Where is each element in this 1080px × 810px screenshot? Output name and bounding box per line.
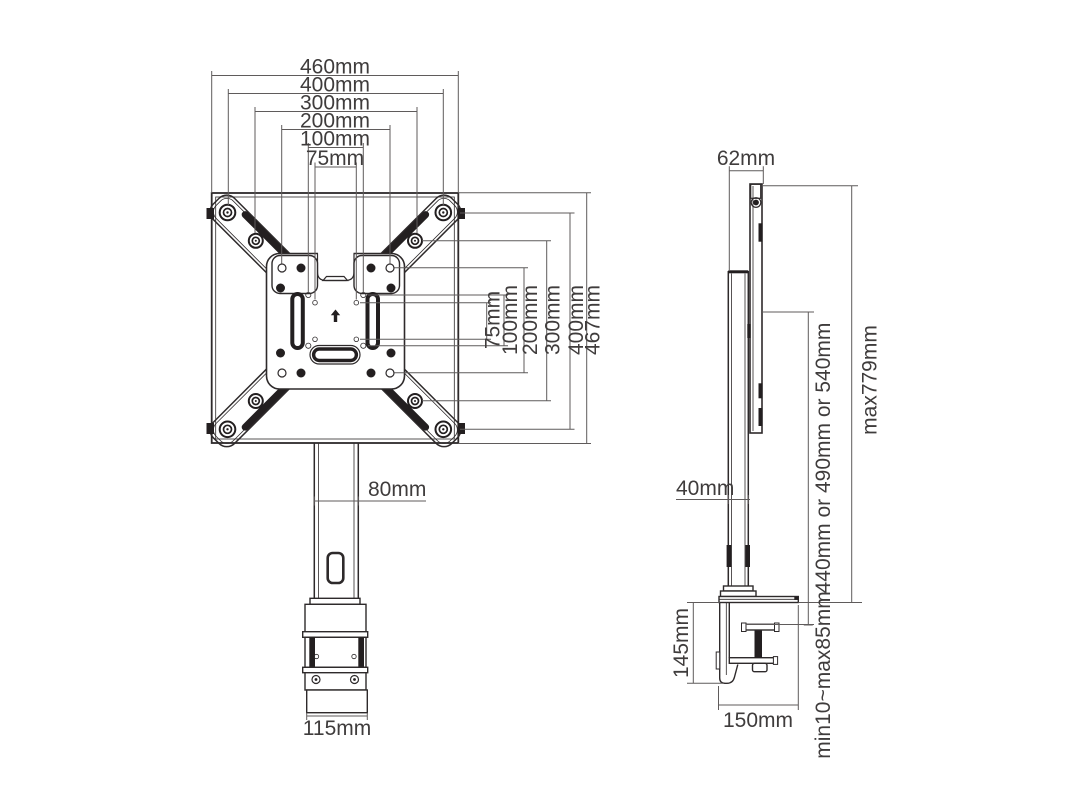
dim-label-width-75: 75mm — [306, 147, 364, 170]
dim-label-pole-height: 440mm or 490mm or 540mm — [812, 323, 835, 594]
clamp-screw-shaft — [755, 630, 763, 658]
dim-label-pole-depth: 40mm — [676, 477, 734, 500]
pole-front — [314, 443, 358, 598]
dim-label-base-width: 115mm — [303, 717, 371, 740]
dimension-clamp-height: 145mm — [670, 603, 724, 684]
dim-label-height-300: 300mm — [542, 285, 565, 355]
dimension-pole-height: 440mm or 490mm or 540mm — [762, 312, 835, 603]
technical-drawing: 460mm 400mm 300mm 200mm 100mm 75mm 75mm … — [0, 0, 1080, 810]
top-screw-knob — [753, 200, 759, 206]
pole-clip-right — [745, 545, 750, 567]
pole-side — [727, 270, 750, 586]
dim-label-clamp-depth: 150mm — [723, 709, 793, 732]
front-view: 460mm 400mm 300mm 200mm 100mm 75mm 75mm … — [206, 56, 605, 741]
dim-label-desk-thickness: min10~max85mm — [812, 591, 835, 758]
dimension-desk-thickness: min10~max85mm — [746, 591, 835, 758]
dim-label-max-height: max779mm — [859, 325, 882, 435]
clamp-front — [303, 598, 368, 712]
dim-label-pole-width: 80mm — [368, 478, 426, 501]
clamp-side — [716, 586, 798, 683]
pole-clip-left — [727, 545, 732, 567]
dimension-pole-depth: 40mm — [676, 477, 750, 504]
slot-left — [292, 294, 303, 348]
clamp-knob — [753, 663, 768, 671]
clamp-pad — [743, 624, 777, 630]
dimension-top-offset: 62mm — [717, 147, 775, 271]
dimension-pole-width: 80mm — [314, 478, 426, 506]
slot-right — [368, 294, 379, 348]
side-view: 62mm 40mm max779mm 440mm or 490mm or 540… — [670, 147, 882, 759]
dim-label-height-467: 467mm — [582, 285, 605, 355]
bracket-plate-side — [747, 184, 762, 433]
dim-label-height-200: 200mm — [519, 285, 542, 355]
dim-label-clamp-height: 145mm — [670, 608, 693, 678]
dim-label-top-offset: 62mm — [717, 147, 775, 170]
clamp-foot — [729, 658, 777, 664]
drawing-canvas: 460mm 400mm 300mm 200mm 100mm 75mm 75mm … — [0, 0, 1080, 810]
dimension-base-width: 115mm — [303, 713, 371, 740]
vesa-plate — [267, 252, 405, 389]
pole-slot — [328, 553, 344, 583]
